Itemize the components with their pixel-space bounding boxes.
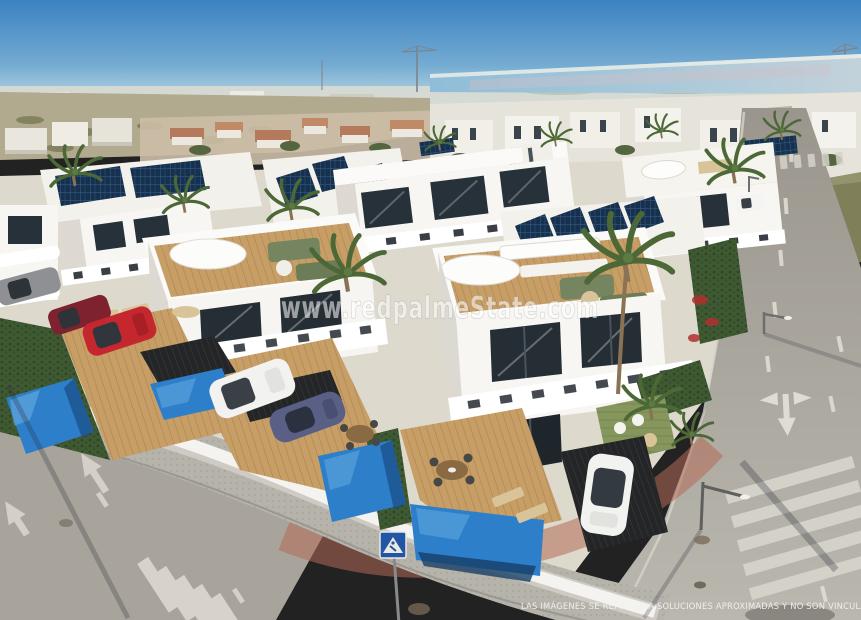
house: [302, 118, 328, 134]
slot: [487, 224, 498, 232]
slot: [386, 237, 397, 245]
slot: [453, 229, 464, 237]
parasol-icon: [172, 306, 200, 318]
manhole-cover: [59, 519, 73, 527]
suburb-villa: [570, 112, 620, 148]
dining-table: [346, 425, 374, 443]
slot: [265, 338, 277, 347]
coffee-table: [276, 260, 292, 276]
parasol-icon: [440, 255, 520, 285]
stripe: [835, 152, 843, 166]
parasol-icon: [170, 239, 246, 269]
stripe: [779, 156, 787, 170]
slot: [419, 233, 430, 241]
slot: [101, 267, 111, 275]
house: [340, 126, 370, 143]
chair: [430, 458, 439, 467]
stripe: [807, 154, 815, 168]
render-image: www.redpalmeState.com LAS IMÁGENES SE RE…: [0, 0, 861, 620]
stripe: [793, 155, 801, 169]
chair: [340, 424, 348, 432]
disclaimer-text: LAS IMÁGENES SE REFIEREN A SOLUCIONES AP…: [521, 600, 861, 611]
chair: [370, 420, 378, 428]
manhole-cover: [694, 536, 710, 545]
slot: [233, 343, 245, 352]
slot: [359, 325, 371, 334]
chair: [372, 438, 380, 446]
chair: [346, 442, 354, 450]
stripe: [821, 153, 829, 167]
slot: [73, 271, 83, 279]
garden-chair: [632, 414, 644, 426]
slot: [297, 333, 309, 342]
slot: [759, 234, 769, 241]
arrow-stem: [782, 394, 789, 418]
scene: www.redpalmeState.com LAS IMÁGENES SE RE…: [0, 0, 861, 620]
slot: [329, 329, 341, 338]
car-glass: [741, 198, 752, 209]
sign-pedestrian-glyph: [391, 541, 394, 544]
watermark: www.redpalmeState.com: [281, 291, 599, 326]
chair: [466, 476, 475, 485]
house: [215, 122, 243, 138]
chair: [434, 478, 443, 487]
house: [390, 120, 424, 137]
manhole-cover: [694, 582, 706, 589]
house: [170, 128, 204, 145]
manhole-cover: [408, 603, 430, 615]
car-glass: [590, 467, 627, 509]
window: [93, 221, 126, 251]
chair: [464, 454, 473, 463]
window: [8, 216, 42, 244]
slot: [129, 263, 139, 271]
suburb-villa: [812, 112, 856, 148]
table-center: [448, 468, 456, 473]
garden-chair: [614, 422, 626, 434]
